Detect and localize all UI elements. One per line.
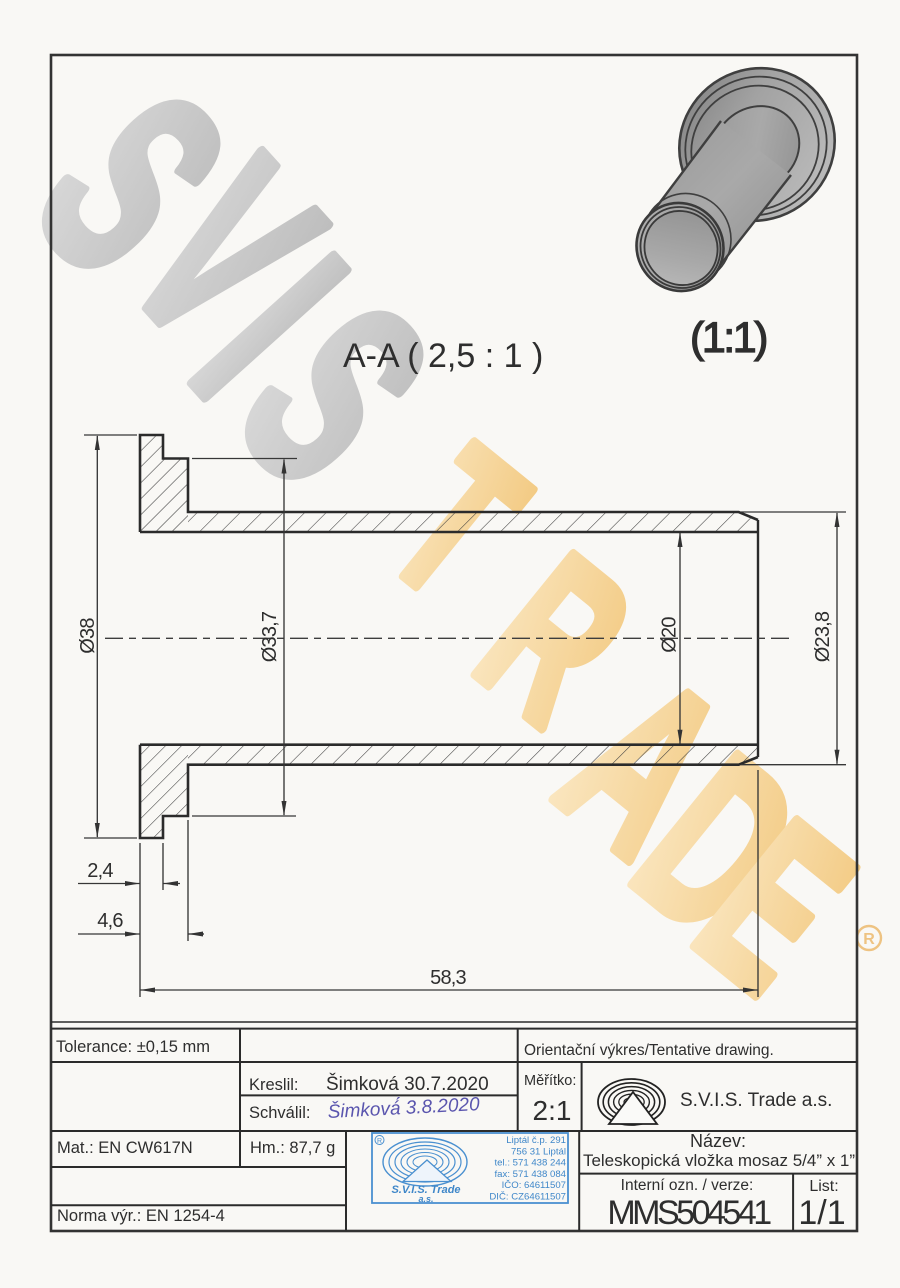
- svg-text:Orientační výkres/Tentative dr: Orientační výkres/Tentative drawing.: [524, 1042, 774, 1059]
- svg-text:Ø33,7: Ø33,7: [259, 611, 281, 662]
- svg-text:Schválil:: Schválil:: [249, 1104, 310, 1122]
- svg-text:Měřítko:: Měřítko:: [524, 1073, 576, 1089]
- svg-text:Tolerance: ±0,15 mm: Tolerance: ±0,15 mm: [56, 1038, 210, 1056]
- svg-text:Interní ozn. / verze:: Interní ozn. / verze:: [621, 1177, 754, 1194]
- svg-text:Šimková 30.7.2020: Šimková 30.7.2020: [326, 1073, 489, 1095]
- svg-text:4,6: 4,6: [97, 910, 123, 932]
- svg-text:Ø38: Ø38: [77, 618, 99, 654]
- svg-text:Ø20: Ø20: [659, 617, 681, 653]
- svg-text:R: R: [863, 931, 875, 948]
- svg-text:Název:: Název:: [690, 1131, 746, 1151]
- svg-text:List:: List:: [809, 1178, 838, 1195]
- svg-text:(1:1): (1:1): [690, 314, 766, 362]
- svg-text:S.V.I.S. Trade a.s.: S.V.I.S. Trade a.s.: [680, 1090, 832, 1111]
- svg-text:Šimková́ 3.8.2020: Šimková́ 3.8.2020: [327, 1093, 480, 1123]
- svg-text:Hm.: 87,7 g: Hm.: 87,7 g: [250, 1139, 335, 1157]
- svg-text:2:1: 2:1: [533, 1095, 572, 1126]
- svg-text:Norma výr.: EN 1254-4: Norma výr.: EN 1254-4: [57, 1207, 225, 1225]
- svg-text:R: R: [377, 1138, 382, 1145]
- svg-text:A-A ( 2,5 : 1 ): A-A ( 2,5 : 1 ): [343, 337, 543, 375]
- svg-text:DIČ: CZ64611507: DIČ: CZ64611507: [489, 1192, 566, 1203]
- svg-text:IČO: 64611507: IČO: 64611507: [502, 1180, 566, 1191]
- svg-text:2,4: 2,4: [87, 860, 113, 882]
- svg-text:fax: 571 438 084: fax: 571 438 084: [495, 1169, 567, 1180]
- svg-text:a.s.: a.s.: [418, 1194, 433, 1204]
- svg-text:Mat.: EN CW617N: Mat.: EN CW617N: [57, 1139, 193, 1157]
- svg-text:58,3: 58,3: [430, 967, 466, 989]
- svg-text:756 31 Liptál: 756 31 Liptál: [511, 1146, 566, 1157]
- svg-text:MMS504541: MMS504541: [607, 1194, 771, 1232]
- svg-text:Kreslil:: Kreslil:: [249, 1076, 299, 1094]
- svg-text:1/1: 1/1: [798, 1194, 845, 1232]
- svg-text:Ø23,8: Ø23,8: [812, 611, 834, 662]
- svg-text:Teleskopická vložka mosaz 5/4”: Teleskopická vložka mosaz 5/4” x 1”: [583, 1151, 855, 1170]
- svg-text:Liptál č.p. 291: Liptál č.p. 291: [506, 1135, 566, 1146]
- svg-text:tel.: 571 438 244: tel.: 571 438 244: [495, 1158, 567, 1169]
